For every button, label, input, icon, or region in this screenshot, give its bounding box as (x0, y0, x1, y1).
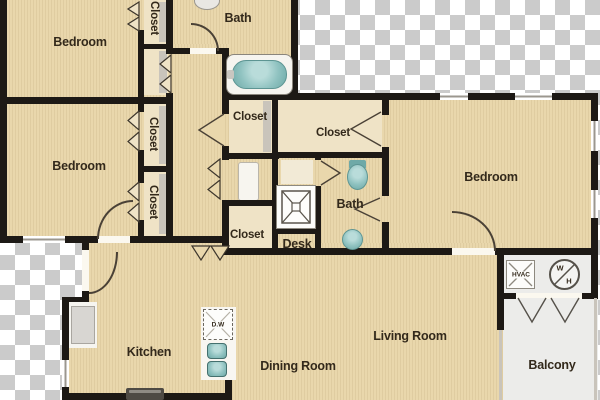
room-label-closet-hall-lower: Closet (230, 229, 264, 241)
door-swing-hall-closet (196, 112, 226, 148)
closet-hall-lower-interior (229, 206, 272, 248)
closet-hall-upper-shelf (263, 101, 271, 152)
refrigerator-icon (71, 306, 95, 344)
room-label-kitchen: Kitchen (127, 345, 171, 359)
room-label-bath2: Bath (337, 197, 364, 211)
wall-segment (166, 93, 173, 236)
window (23, 236, 65, 243)
room-label-closet-c: Closet (147, 185, 159, 219)
floor-plan: Bedroom Bedroom Bedroom Bath Bath Closet… (0, 0, 600, 400)
room-label-bedroom2: Bedroom (52, 159, 105, 173)
wall-segment (591, 218, 598, 298)
bathtub-basin (232, 60, 287, 89)
wall-segment (65, 236, 98, 243)
wall-segment (495, 248, 598, 255)
room-label-balcony: Balcony (528, 358, 575, 372)
wall-segment (138, 220, 144, 243)
wall-segment (222, 146, 229, 160)
room-label-bedroom3: Bedroom (464, 170, 517, 184)
kitchen-sink-icon (207, 343, 227, 359)
floor-living-dining (82, 243, 503, 400)
balcony-railing (594, 298, 597, 400)
wall-segment (272, 152, 389, 158)
door-swing-bath2-west (319, 159, 343, 187)
room-label-closet-hall-upper: Closet (233, 111, 267, 123)
wall-segment (222, 153, 279, 159)
wall-segment (62, 304, 69, 360)
room-label-living: Living Room (373, 329, 447, 343)
wall-segment (0, 0, 7, 243)
shower-glass-x (281, 190, 311, 224)
wall-segment (503, 293, 516, 299)
wall-segment (82, 291, 89, 301)
room-label-walkin-closet: Closet (316, 127, 350, 139)
room-label-bath1: Bath (225, 11, 252, 25)
balcony-door-swing-right (549, 297, 581, 324)
wall-segment (382, 222, 389, 255)
label-water-heater-w: W (556, 264, 563, 273)
wall-segment (468, 93, 515, 100)
bifold-door-closet-c (126, 181, 141, 223)
balcony-railing (499, 330, 502, 400)
kitchen-sink-icon (207, 361, 227, 377)
wall-segment (222, 248, 452, 255)
bath2-vestibule (281, 160, 313, 184)
label-water-heater-h: H (566, 277, 571, 286)
room-label-closet-b: Closet (147, 117, 159, 151)
wall-segment (222, 200, 279, 206)
wall-segment (0, 97, 172, 104)
stove-burners (129, 390, 161, 393)
room-label-desk: Desk (282, 237, 311, 251)
window (591, 121, 598, 151)
window (591, 190, 598, 218)
bifold-door-closet-b (126, 110, 141, 152)
wall-segment (272, 93, 278, 255)
wall-segment (382, 93, 389, 115)
bathtub-faucet (227, 70, 234, 79)
room-label-closet-a: Closet (148, 1, 160, 35)
window (440, 93, 468, 100)
wall-segment (138, 150, 144, 183)
window (515, 93, 552, 100)
wall-segment (82, 243, 89, 250)
wall-segment (591, 93, 598, 121)
bifold-door-hall-closet (191, 245, 230, 262)
door-swing-walkin-closet (348, 110, 383, 148)
wall-segment (130, 236, 229, 243)
window (62, 360, 69, 387)
wall-segment (166, 0, 173, 50)
wall-segment (62, 387, 69, 400)
utility-nook-panel (238, 162, 259, 201)
bifold-door-utility-nook (206, 158, 222, 200)
wall-segment (382, 147, 389, 196)
sink-icon (342, 229, 363, 250)
wall-segment (295, 93, 440, 100)
bifold-door-closet-a (126, 1, 141, 32)
label-dishwasher: D.W (211, 322, 226, 329)
door-opening (82, 250, 89, 291)
wall-segment (138, 30, 144, 97)
room-label-dining: Dining Room (260, 359, 336, 373)
wall-segment (497, 255, 504, 330)
bifold-door-closet-low (158, 54, 173, 94)
wall-segment (591, 151, 598, 190)
label-hvac: HVAC (511, 272, 531, 279)
balcony-door-swing-left (516, 297, 548, 324)
toilet-icon (347, 164, 368, 190)
room-label-bedroom1: Bedroom (53, 35, 106, 49)
